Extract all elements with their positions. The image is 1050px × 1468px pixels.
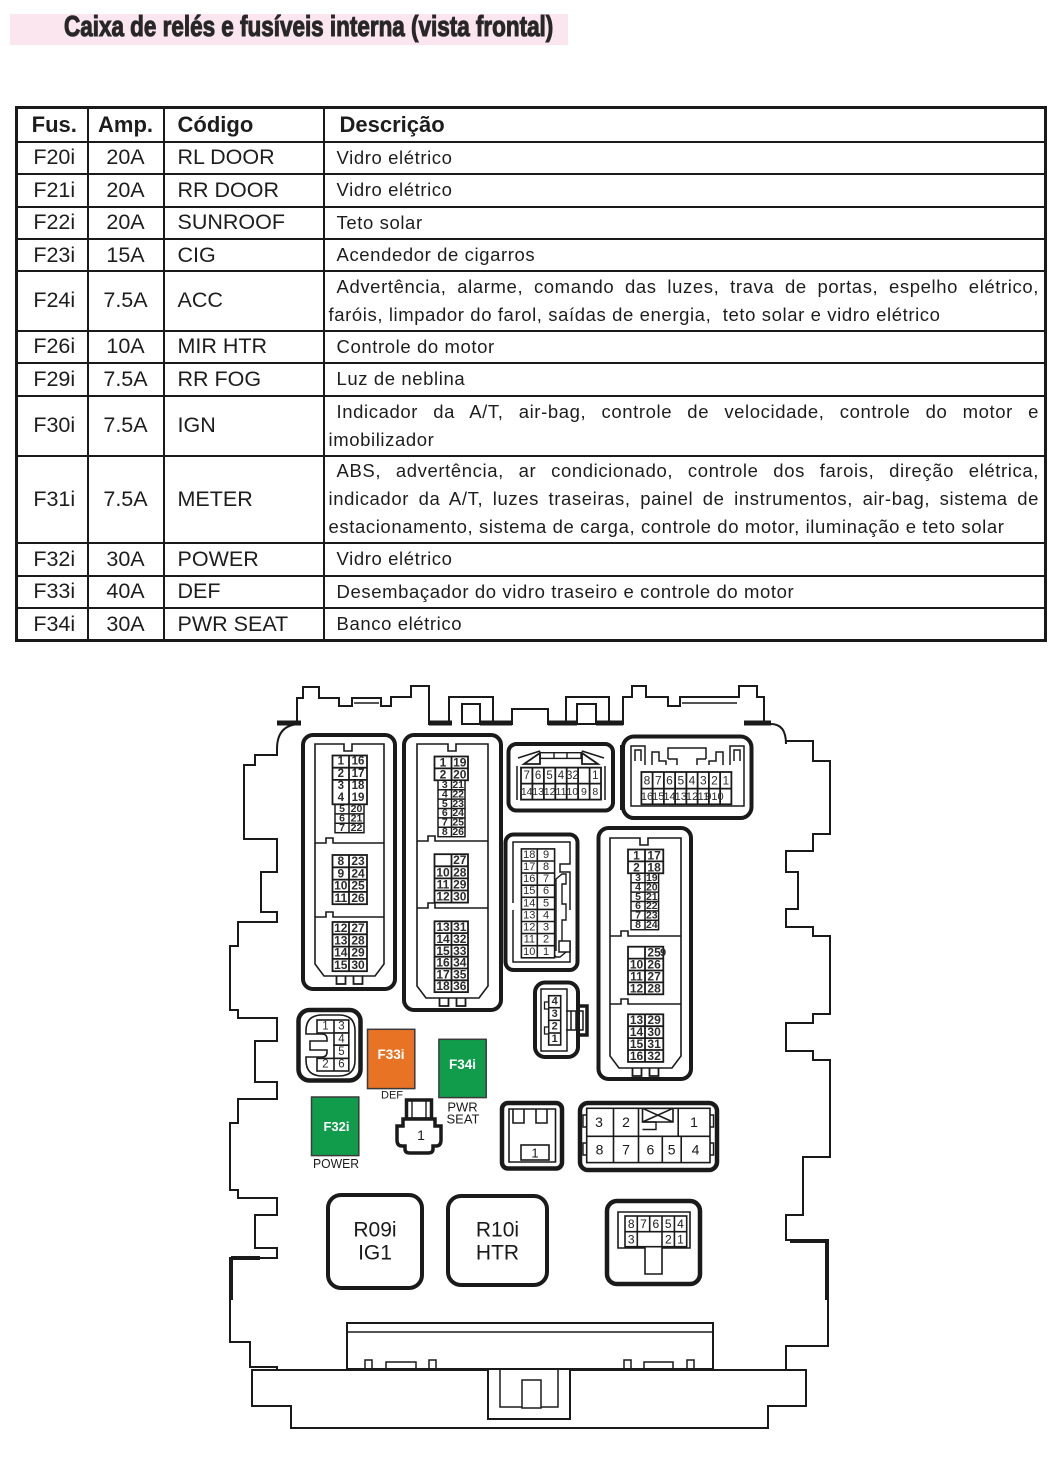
svg-text:24: 24 <box>646 919 658 931</box>
svg-text:1: 1 <box>543 946 549 958</box>
svg-text:26: 26 <box>452 826 464 838</box>
svg-text:1: 1 <box>417 1127 425 1143</box>
svg-text:12: 12 <box>436 890 450 904</box>
svg-text:26: 26 <box>351 891 365 905</box>
svg-text:14: 14 <box>521 786 533 798</box>
svg-text:4: 4 <box>689 774 696 788</box>
svg-text:8: 8 <box>596 1141 604 1157</box>
svg-text:16: 16 <box>630 1049 644 1063</box>
svg-text:2: 2 <box>711 774 718 788</box>
svg-text:6: 6 <box>543 885 549 897</box>
svg-text:4: 4 <box>558 770 565 782</box>
svg-text:7: 7 <box>339 822 345 834</box>
svg-text:1: 1 <box>552 1033 558 1045</box>
svg-text:F32i: F32i <box>323 1119 349 1134</box>
svg-text:9: 9 <box>581 786 587 798</box>
svg-text:1: 1 <box>531 1145 538 1160</box>
svg-text:7: 7 <box>523 770 529 782</box>
svg-text:7: 7 <box>655 774 662 788</box>
svg-text:5: 5 <box>338 1046 344 1058</box>
svg-text:3: 3 <box>628 1232 635 1246</box>
svg-text:16: 16 <box>523 873 535 885</box>
svg-text:7: 7 <box>543 873 549 885</box>
svg-text:SEAT: SEAT <box>447 1112 480 1127</box>
svg-text:3: 3 <box>338 1021 344 1033</box>
svg-text:13: 13 <box>532 786 544 798</box>
svg-text:17: 17 <box>523 861 535 873</box>
svg-text:15: 15 <box>334 958 348 972</box>
svg-text:DEF: DEF <box>381 1090 403 1102</box>
svg-text:2: 2 <box>322 1059 328 1071</box>
svg-text:HTR: HTR <box>476 1242 519 1265</box>
svg-text:1: 1 <box>690 1114 698 1130</box>
svg-text:5: 5 <box>543 897 549 909</box>
svg-text:30: 30 <box>351 958 365 972</box>
svg-text:18: 18 <box>436 979 450 993</box>
svg-text:9: 9 <box>660 947 666 959</box>
svg-text:8: 8 <box>635 919 641 931</box>
svg-text:R09i: R09i <box>353 1219 396 1242</box>
svg-text:3: 3 <box>552 1008 558 1020</box>
svg-text:13: 13 <box>523 910 535 922</box>
svg-text:18: 18 <box>352 780 365 792</box>
svg-text:1: 1 <box>338 756 345 768</box>
svg-text:36: 36 <box>453 979 467 993</box>
svg-text:5: 5 <box>677 774 684 788</box>
svg-text:4: 4 <box>677 1217 684 1231</box>
svg-text:F34i: F34i <box>449 1057 476 1072</box>
svg-text:30: 30 <box>453 890 467 904</box>
svg-text:7: 7 <box>622 1141 630 1157</box>
svg-text:6: 6 <box>666 774 673 788</box>
svg-text:12: 12 <box>544 786 556 798</box>
svg-text:1: 1 <box>592 770 598 782</box>
svg-text:10: 10 <box>523 946 535 958</box>
svg-text:8: 8 <box>592 786 598 798</box>
svg-text:6: 6 <box>338 1059 344 1071</box>
svg-text:11: 11 <box>524 934 535 946</box>
svg-text:28: 28 <box>647 981 661 995</box>
svg-text:32: 32 <box>647 1049 661 1063</box>
svg-text:22: 22 <box>351 822 363 834</box>
svg-text:3: 3 <box>543 922 549 934</box>
svg-text:5: 5 <box>668 1141 676 1157</box>
svg-text:3: 3 <box>338 780 344 792</box>
svg-text:11: 11 <box>556 786 567 798</box>
svg-text:2: 2 <box>552 1021 558 1033</box>
svg-text:1: 1 <box>722 774 729 788</box>
svg-text:8: 8 <box>543 861 549 873</box>
svg-text:17: 17 <box>352 768 365 780</box>
svg-text:12: 12 <box>686 791 698 803</box>
svg-text:10: 10 <box>567 786 579 798</box>
svg-text:5: 5 <box>546 770 552 782</box>
svg-text:16: 16 <box>352 756 365 768</box>
svg-text:6: 6 <box>535 770 541 782</box>
svg-text:8: 8 <box>442 826 448 838</box>
svg-text:3: 3 <box>700 774 707 788</box>
svg-text:8: 8 <box>644 774 651 788</box>
svg-text:4: 4 <box>692 1141 700 1157</box>
svg-text:7: 7 <box>640 1217 647 1231</box>
svg-text:F33i: F33i <box>377 1047 404 1062</box>
svg-text:32: 32 <box>566 770 579 782</box>
svg-text:2: 2 <box>665 1232 672 1246</box>
svg-text:6: 6 <box>647 1141 655 1157</box>
svg-text:12: 12 <box>630 981 644 995</box>
svg-text:2: 2 <box>543 934 549 946</box>
svg-text:1: 1 <box>677 1232 684 1246</box>
svg-text:POWER: POWER <box>313 1157 359 1171</box>
svg-text:6: 6 <box>653 1217 660 1231</box>
svg-text:3: 3 <box>595 1114 603 1130</box>
svg-text:4: 4 <box>543 910 549 922</box>
svg-text:R10i: R10i <box>476 1219 519 1242</box>
svg-text:12: 12 <box>523 922 535 934</box>
svg-text:1: 1 <box>322 1021 328 1033</box>
svg-text:4: 4 <box>552 996 559 1008</box>
svg-text:IG1: IG1 <box>358 1242 392 1265</box>
svg-text:2: 2 <box>338 768 344 780</box>
svg-text:910: 910 <box>705 791 723 803</box>
svg-text:11: 11 <box>334 891 347 905</box>
svg-text:8: 8 <box>628 1217 635 1231</box>
svg-text:2: 2 <box>622 1114 630 1130</box>
svg-text:15: 15 <box>523 885 535 897</box>
svg-text:18: 18 <box>523 849 535 861</box>
svg-text:4: 4 <box>338 1033 345 1045</box>
svg-text:5: 5 <box>665 1217 672 1231</box>
svg-text:14: 14 <box>523 897 535 909</box>
svg-text:9: 9 <box>543 849 549 861</box>
